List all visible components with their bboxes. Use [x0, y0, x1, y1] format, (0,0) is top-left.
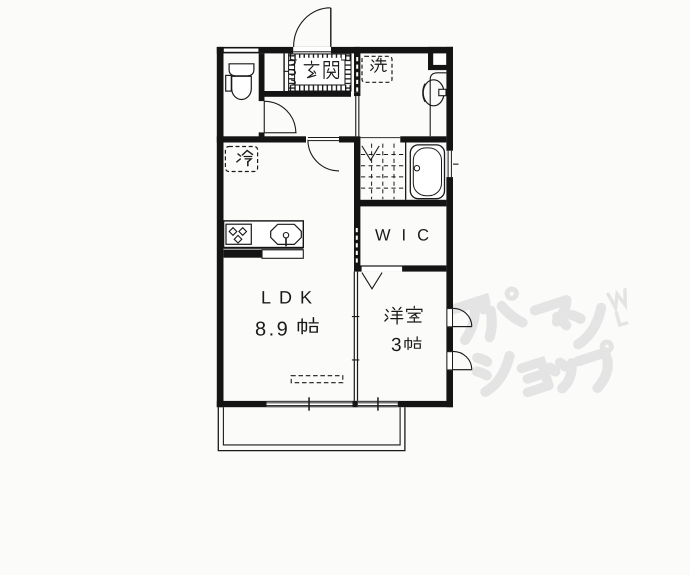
svg-text:LDK: LDK: [261, 288, 320, 308]
svg-text:8.9: 8.9: [255, 319, 290, 341]
svg-text:WIC: WIC: [375, 227, 440, 245]
svg-text:3: 3: [391, 335, 402, 356]
